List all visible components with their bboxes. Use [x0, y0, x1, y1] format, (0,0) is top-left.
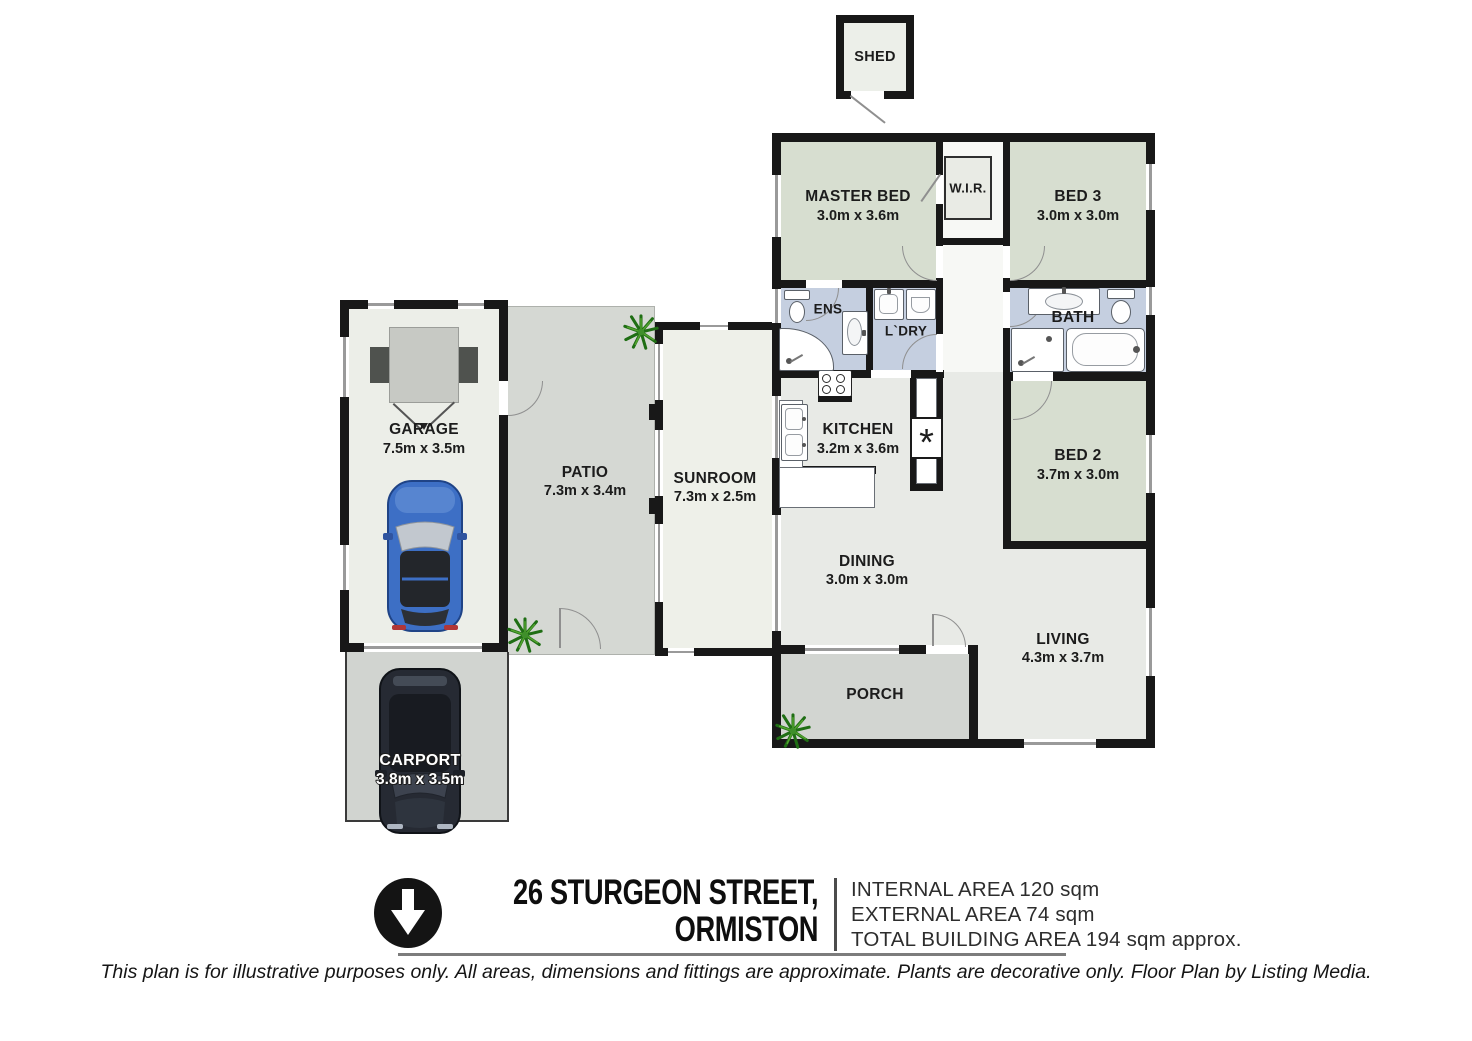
kitchen-sink-icon — [781, 404, 808, 461]
room-dims-master: 3.0m x 3.6m — [817, 208, 899, 224]
room-dims-dining: 3.0m x 3.0m — [826, 572, 908, 588]
room-label-ens: ENS — [814, 302, 843, 317]
room-label-kitchen: KITCHEN — [823, 421, 894, 439]
window — [1146, 435, 1155, 493]
pantry-symbol: * — [910, 424, 943, 462]
internal-area: INTERNAL AREA 120 sqm — [851, 877, 1242, 902]
toilet-bowl-icon — [1111, 300, 1131, 324]
room-dims-carport: 3.8m x 3.5m — [376, 771, 464, 789]
door-gap — [1003, 246, 1010, 278]
window — [805, 645, 899, 654]
window — [655, 430, 663, 496]
window — [655, 524, 663, 602]
car-blue-icon — [383, 477, 467, 635]
disclaimer-text: This plan is for illustrative purposes o… — [0, 961, 1472, 984]
address-line1: 26 STURGEON STREET, — [513, 874, 818, 911]
roller-door-panel — [389, 327, 459, 403]
plant-icon — [622, 313, 660, 351]
washing-machine-icon — [906, 289, 936, 320]
window — [1146, 164, 1155, 210]
room-dims-bed3: 3.0m x 3.0m — [1037, 208, 1119, 224]
room-label-master: MASTER BED — [805, 188, 910, 206]
window — [1024, 739, 1096, 748]
room-dims-patio: 7.3m x 3.4m — [544, 483, 626, 499]
stove-strip — [818, 396, 852, 402]
floorplan-page: * — [0, 0, 1472, 1041]
wall — [910, 484, 943, 491]
door-gap — [936, 246, 943, 278]
door-gap — [936, 334, 943, 372]
room-label-wir: W.I.R. — [949, 181, 986, 196]
toilet-bowl-icon — [789, 301, 805, 323]
room-dims-living: 4.3m x 3.7m — [1022, 650, 1104, 666]
room-label-laundry: L`DRY — [885, 324, 927, 339]
window — [668, 648, 694, 656]
window — [340, 337, 349, 397]
door-leaf — [932, 614, 934, 646]
room-label-carport: CARPORT — [379, 752, 460, 770]
room-dims-sunroom: 7.3m x 2.5m — [674, 489, 756, 505]
external-area: EXTERNAL AREA 74 sqm — [851, 902, 1242, 927]
window — [655, 344, 663, 400]
window — [458, 300, 484, 309]
brand-logo-icon — [373, 877, 443, 949]
area-summary: INTERNAL AREA 120 sqm EXTERNAL AREA 74 s… — [851, 877, 1242, 952]
room-dims-bed2: 3.7m x 3.0m — [1037, 467, 1119, 483]
window — [1146, 608, 1155, 676]
wall — [499, 300, 508, 652]
window — [1146, 287, 1155, 315]
car-dark-icon — [375, 666, 465, 836]
wall — [936, 238, 1010, 245]
plant-icon — [506, 616, 544, 654]
room-label-sunroom: SUNROOM — [673, 470, 756, 488]
footer-rule — [398, 953, 1066, 956]
roller-door-rail — [459, 347, 478, 383]
room-label-shed: SHED — [854, 49, 896, 65]
patio-post — [649, 404, 663, 420]
plant-icon — [774, 712, 812, 750]
door-gap — [1003, 292, 1010, 328]
room-dims-garage: 7.5m x 3.5m — [383, 441, 465, 457]
laundry-tub-icon — [874, 289, 904, 320]
window — [700, 322, 728, 330]
wall — [969, 645, 978, 748]
door-gap — [499, 381, 508, 415]
shed-door-gap — [851, 91, 884, 99]
door-gap — [1013, 372, 1053, 381]
window — [772, 175, 781, 237]
window — [772, 289, 781, 323]
room-label-patio: PATIO — [562, 464, 609, 482]
room-label-bed3: BED 3 — [1054, 188, 1101, 206]
room-label-bath: BATH — [1051, 309, 1094, 327]
wall — [772, 133, 1155, 142]
window — [364, 643, 482, 652]
address-line2: ORMISTON — [513, 911, 818, 948]
toilet-icon — [784, 290, 810, 300]
door-gap — [806, 280, 842, 288]
shower-icon — [1011, 328, 1064, 372]
room-label-porch: PORCH — [846, 686, 903, 704]
room-label-living: LIVING — [1036, 631, 1089, 649]
total-area: TOTAL BUILDING AREA 194 sqm approx. — [851, 927, 1242, 952]
kitchen-counter — [779, 467, 875, 508]
stove-icon — [818, 370, 852, 397]
door-gap — [943, 280, 1003, 288]
window — [340, 545, 349, 590]
shed-door-leaf — [850, 95, 886, 123]
vanity-icon — [842, 311, 868, 355]
fridge-nook-gap — [871, 370, 911, 378]
window — [368, 300, 394, 309]
room-label-garage: GARAGE — [389, 421, 459, 439]
window — [772, 515, 781, 631]
wall — [1003, 541, 1155, 549]
property-address: 26 STURGEON STREET, ORMISTON — [513, 874, 818, 948]
room-label-bed2: BED 2 — [1054, 447, 1101, 465]
patio-post — [649, 498, 663, 514]
footer-divider — [834, 878, 837, 951]
room-dims-kitchen: 3.2m x 3.6m — [817, 441, 899, 457]
bathtub-icon — [1066, 328, 1145, 372]
wall — [1003, 381, 1011, 548]
toilet-icon — [1107, 289, 1135, 299]
room-label-dining: DINING — [839, 553, 895, 571]
door-leaf — [559, 608, 561, 648]
roller-door-rail — [370, 347, 389, 383]
